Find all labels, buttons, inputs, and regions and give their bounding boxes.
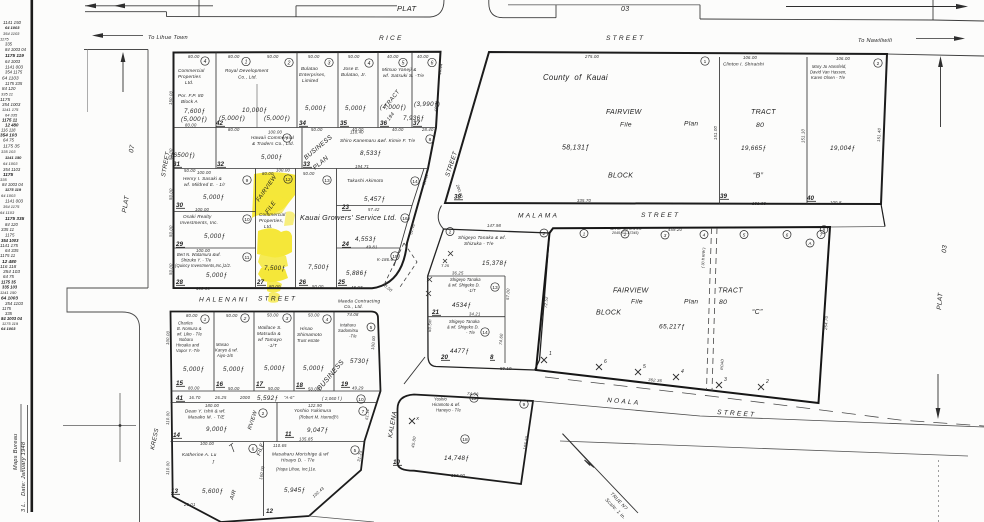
- svg-text:26.25: 26.25: [214, 395, 227, 400]
- svg-text:64 1003: 64 1003: [3, 161, 18, 166]
- svg-text:TRACT: TRACT: [718, 288, 743, 295]
- svg-text:19,004ƒ: 19,004ƒ: [830, 145, 855, 152]
- svg-text:5,000ƒ: 5,000ƒ: [203, 194, 224, 201]
- svg-text:40.00: 40.00: [387, 54, 399, 59]
- svg-text:64 1103: 64 1103: [0, 210, 15, 215]
- svg-text:Limited: Limited: [302, 78, 318, 83]
- svg-text:Co., Ltd.: Co., Ltd.: [238, 75, 257, 80]
- svg-text:60.5m: 60.5m: [427, 319, 432, 332]
- svg-text:wf. Satsuki S. -T/e: wf. Satsuki S. -T/e: [383, 73, 424, 78]
- svg-text:Co., Ltd.: Co., Ltd.: [344, 304, 363, 309]
- svg-text:354 1175: 354 1175: [3, 204, 20, 209]
- svg-text:80: 80: [719, 299, 727, 306]
- svg-text:Hiroaka and: Hiroaka and: [176, 343, 200, 348]
- svg-text:6: 6: [786, 233, 789, 239]
- svg-text:1175 11: 1175 11: [0, 253, 16, 258]
- svg-text:64 1003: 64 1003: [1, 193, 16, 198]
- svg-text:150.00: 150.00: [168, 90, 174, 105]
- svg-text:4: 4: [368, 61, 371, 67]
- svg-text:50.00: 50.00: [348, 54, 360, 59]
- svg-text:Ltd.: Ltd.: [264, 224, 272, 229]
- svg-text:wf. Liko - T/e: wf. Liko - T/e: [177, 332, 202, 337]
- svg-text:7,500ƒ: 7,500ƒ: [264, 265, 285, 272]
- svg-text:Shigeyo Tanaka: Shigeyo Tanaka: [450, 277, 481, 282]
- svg-text:Royal Development: Royal Development: [225, 68, 269, 73]
- svg-text:74.06: 74.06: [467, 391, 479, 397]
- svg-text:11: 11: [245, 255, 250, 261]
- svg-text:Kanyo & wf.: Kanyo & wf.: [215, 348, 238, 353]
- svg-text:6: 6: [431, 61, 434, 67]
- svg-text:100.00: 100.00: [196, 286, 210, 291]
- svg-text:STREET: STREET: [258, 296, 297, 303]
- svg-text:13: 13: [492, 285, 498, 291]
- svg-text:80: 80: [756, 122, 764, 129]
- svg-text:(5,000ƒ): (5,000ƒ): [219, 115, 245, 122]
- svg-text:5,000ƒ: 5,000ƒ: [303, 365, 324, 372]
- svg-text:Aiyo-1/6: Aiyo-1/6: [216, 353, 233, 358]
- svg-text:Dean Y. Ishii & wf.: Dean Y. Ishii & wf.: [185, 409, 226, 414]
- svg-text:5,457ƒ: 5,457ƒ: [364, 196, 385, 203]
- svg-text:-1/T: -1/T: [468, 288, 476, 293]
- svg-text:50.00: 50.00: [267, 54, 279, 59]
- svg-text:(Robert M. Harrod)½: (Robert M. Harrod)½: [299, 415, 339, 420]
- svg-text:1: 1: [245, 60, 248, 66]
- svg-text:40.00: 40.00: [417, 54, 429, 59]
- svg-text:Matsuda &: Matsuda &: [257, 331, 281, 336]
- svg-text:135.85: 135.85: [299, 437, 313, 442]
- svg-text:110.00: 110.00: [165, 461, 170, 475]
- svg-text:(Quincy Investments,Inc.)1/2.: (Quincy Investments,Inc.)1/2.: [175, 263, 231, 268]
- svg-text:Sadomitsu: Sadomitsu: [338, 328, 359, 333]
- svg-text:7,600ƒ: 7,600ƒ: [184, 108, 205, 115]
- svg-text:5,000ƒ: 5,000ƒ: [305, 105, 326, 112]
- svg-text:5,000ƒ: 5,000ƒ: [206, 272, 227, 279]
- svg-text:File: File: [631, 299, 643, 306]
- svg-text:Plan: Plan: [684, 121, 698, 128]
- svg-text:TRACT: TRACT: [751, 109, 776, 116]
- svg-text:Ltd.: Ltd.: [185, 80, 193, 85]
- svg-text:B. Nomura &: B. Nomura &: [177, 326, 202, 331]
- svg-text:50.00: 50.00: [308, 54, 320, 59]
- svg-text:64 1003: 64 1003: [1, 296, 18, 301]
- svg-text:BLOCK: BLOCK: [608, 173, 633, 180]
- svg-text:3: 3: [286, 316, 289, 322]
- svg-text:Shizuka - T/e: Shizuka - T/e: [464, 241, 494, 246]
- svg-text:28.40: 28.40: [421, 127, 434, 132]
- svg-text:100.00: 100.00: [195, 207, 209, 212]
- svg-text:151.10: 151.10: [801, 129, 806, 143]
- svg-text:1175 335: 1175 335: [5, 216, 25, 221]
- svg-text:5,592ƒ: 5,592ƒ: [257, 395, 278, 402]
- svg-text:64 1003: 64 1003: [5, 25, 20, 30]
- svg-text:FAIRVIEW: FAIRVIEW: [613, 288, 650, 295]
- svg-text:9,047ƒ: 9,047ƒ: [307, 427, 328, 434]
- svg-text:1175 119: 1175 119: [5, 187, 22, 192]
- svg-text:Mary Jo Hassfeld,: Mary Jo Hassfeld,: [812, 64, 846, 69]
- svg-text:Por. F.P. 80: Por. F.P. 80: [178, 93, 204, 98]
- svg-text:Bulatao: Bulatao: [301, 66, 318, 71]
- svg-text:61.11: 61.11: [364, 409, 370, 421]
- svg-text:7: 7: [286, 136, 289, 142]
- svg-text:354 1103: 354 1103: [3, 31, 20, 36]
- svg-text:K-186.6: K-186.6: [377, 257, 394, 262]
- svg-text:1: 1: [204, 317, 207, 323]
- svg-text:49.81: 49.81: [366, 245, 377, 250]
- svg-text:147.98: 147.98: [487, 223, 501, 228]
- svg-text:100.00: 100.00: [197, 170, 211, 175]
- svg-text:& wf. Shigeko D.: & wf. Shigeko D.: [447, 325, 479, 330]
- svg-text:50.00: 50.00: [168, 188, 173, 200]
- svg-text:13: 13: [324, 178, 330, 184]
- svg-text:Masako M. - T/E: Masako M. - T/E: [188, 415, 225, 420]
- svg-text:“A-6”: “A-6”: [284, 395, 295, 400]
- svg-text:( 2,060 f ): ( 2,060 f ): [322, 396, 343, 401]
- svg-text:459.20: 459.20: [668, 227, 682, 232]
- svg-text:5,000ƒ: 5,000ƒ: [223, 366, 244, 373]
- svg-text:Hiramoto & wf.: Hiramoto & wf.: [432, 402, 460, 407]
- svg-text:118.40: 118.40: [350, 130, 364, 135]
- svg-text:59.10: 59.10: [500, 366, 512, 371]
- svg-text:MALAMA: MALAMA: [518, 213, 559, 220]
- svg-text:18: 18: [462, 437, 468, 443]
- svg-text:57.42: 57.42: [368, 207, 380, 212]
- svg-text:80.00: 80.00: [188, 54, 200, 59]
- svg-text:HALENANI: HALENANI: [199, 297, 250, 304]
- svg-text:2: 2: [262, 411, 265, 417]
- svg-text:9,000ƒ: 9,000ƒ: [206, 426, 227, 433]
- svg-text:2: 2: [542, 231, 546, 237]
- svg-text:Bert N. Watamura &wf.: Bert N. Watamura &wf.: [177, 252, 221, 257]
- svg-text:3: 3: [328, 61, 331, 67]
- svg-text:1: 1: [549, 351, 552, 357]
- svg-text:Yoshio Yukimura: Yoshio Yukimura: [294, 408, 331, 413]
- svg-text:5,600ƒ: 5,600ƒ: [202, 488, 223, 495]
- svg-text:12: 12: [471, 396, 477, 402]
- svg-text:Hisayo D. - T/e: Hisayo D. - T/e: [281, 458, 315, 463]
- svg-text:4,553ƒ: 4,553ƒ: [355, 236, 376, 243]
- svg-text:(5,000ƒ): (5,000ƒ): [264, 115, 290, 122]
- svg-text:Shiro Kanemaru &wf. Kimie F.: Shiro Kanemaru &wf. Kimie F. T/e: [340, 138, 415, 143]
- svg-text:50.00: 50.00: [312, 284, 324, 289]
- svg-text:Jose E.: Jose E.: [342, 66, 360, 71]
- svg-text:64 1003: 64 1003: [5, 59, 21, 64]
- svg-text:50.00: 50.00: [311, 127, 323, 132]
- svg-text:40.00: 40.00: [392, 127, 404, 132]
- svg-text:5,000ƒ: 5,000ƒ: [264, 365, 285, 372]
- svg-text:STREET: STREET: [606, 35, 645, 42]
- svg-text:5: 5: [370, 325, 373, 331]
- svg-text:STREET: STREET: [641, 212, 680, 219]
- svg-text:5: 5: [402, 61, 405, 67]
- svg-text:Yoshio: Yoshio: [434, 397, 448, 402]
- svg-text:100.00: 100.00: [165, 330, 171, 345]
- svg-text:Maps Bureau: Maps Bureau: [13, 433, 19, 470]
- svg-text:03: 03: [621, 6, 629, 13]
- svg-text:151.00: 151.00: [713, 126, 718, 140]
- svg-text:2000: 2000: [239, 395, 251, 400]
- svg-text:ƒ: ƒ: [212, 459, 215, 464]
- svg-text:Shigeyo Tanaka & wf.: Shigeyo Tanaka & wf.: [458, 235, 506, 240]
- svg-text:106.00: 106.00: [743, 55, 757, 60]
- svg-text:64 1003: 64 1003: [1, 326, 16, 331]
- svg-text:07: 07: [128, 144, 136, 153]
- svg-text:4534ƒ: 4534ƒ: [452, 302, 471, 309]
- svg-text:10: 10: [244, 217, 250, 223]
- svg-text:14: 14: [412, 179, 418, 185]
- svg-text:Wallace S.: Wallace S.: [258, 325, 282, 330]
- svg-text:74.60: 74.60: [498, 333, 504, 345]
- svg-text:50.00: 50.00: [268, 386, 280, 391]
- svg-text:50.00: 50.00: [228, 386, 240, 391]
- svg-text:Hisao: Hisao: [300, 326, 313, 331]
- svg-text:Karen Olsen - T/e: Karen Olsen - T/e: [811, 75, 846, 80]
- svg-text:5,000ƒ: 5,000ƒ: [345, 105, 366, 112]
- svg-text:Masaharu Morishige & wf: Masaharu Morishige & wf: [272, 452, 329, 457]
- svg-text:Trust estate: Trust estate: [297, 338, 320, 343]
- svg-text:80.00: 80.00: [185, 123, 197, 128]
- svg-text:Kauai Growers’ Service Ltd.: Kauai Growers’ Service Ltd.: [300, 213, 397, 222]
- svg-text:ROAD: ROAD: [720, 359, 725, 370]
- svg-text:335 103: 335 103: [2, 284, 18, 289]
- svg-text:FAIRVIEW: FAIRVIEW: [606, 109, 643, 116]
- svg-text:34.21: 34.21: [469, 312, 480, 317]
- svg-text:2: 2: [449, 230, 452, 236]
- svg-text:50.00: 50.00: [267, 313, 279, 318]
- svg-text:BLOCK: BLOCK: [596, 310, 621, 317]
- svg-text:84 1003 04: 84 1003 04: [5, 47, 27, 52]
- svg-text:100.00: 100.00: [276, 168, 290, 173]
- svg-text:49.29: 49.29: [352, 386, 364, 391]
- svg-text:4: 4: [703, 233, 706, 239]
- svg-text:335.70: 335.70: [577, 198, 591, 203]
- svg-text:6: 6: [604, 359, 607, 365]
- svg-text:5,945ƒ: 5,945ƒ: [284, 487, 305, 494]
- svg-text:2: 2: [765, 379, 769, 385]
- svg-text:1141 150: 1141 150: [0, 290, 17, 295]
- svg-text:2: 2: [877, 61, 880, 67]
- svg-text:64 75: 64 75: [3, 138, 15, 143]
- svg-text:Charles: Charles: [178, 321, 193, 326]
- svg-text:(6500ƒ): (6500ƒ): [171, 152, 195, 159]
- svg-text:Mitsuo Yaneji &: Mitsuo Yaneji &: [382, 67, 417, 72]
- svg-text:To Lihue Town: To Lihue Town: [148, 35, 188, 41]
- svg-text:65,217ƒ: 65,217ƒ: [659, 324, 685, 331]
- svg-text:8: 8: [429, 137, 432, 143]
- svg-text:50.00: 50.00: [168, 263, 173, 275]
- svg-text:4: 4: [326, 317, 329, 323]
- svg-text:9: 9: [246, 178, 249, 184]
- svg-text:4: 4: [681, 369, 684, 375]
- svg-text:12: 12: [266, 508, 273, 515]
- svg-text:Properties,: Properties,: [259, 218, 283, 223]
- svg-text:-T/e: -T/e: [349, 334, 357, 339]
- svg-text:74.08: 74.08: [347, 312, 359, 317]
- svg-text:Masao: Masao: [216, 342, 229, 347]
- svg-text:- T/e: - T/e: [466, 330, 476, 335]
- svg-text:Enterprises,: Enterprises,: [299, 72, 326, 77]
- svg-text:48.07: 48.07: [351, 285, 363, 290]
- svg-text:Henry I. Sasaki &: Henry I. Sasaki &: [183, 176, 222, 181]
- svg-text:Properties: Properties: [178, 74, 201, 79]
- svg-text:6: 6: [252, 447, 255, 453]
- svg-text:County of Kauai: County of Kauai: [543, 73, 608, 82]
- svg-text:64 1103: 64 1103: [2, 76, 19, 81]
- svg-text:335 11: 335 11: [1, 227, 15, 232]
- svg-text:5,000ƒ: 5,000ƒ: [261, 154, 282, 161]
- svg-text:15,378ƒ: 15,378ƒ: [482, 260, 507, 267]
- svg-text:David Van Hassen,: David Van Hassen,: [810, 70, 847, 75]
- svg-text:& wf. Shigeko D.: & wf. Shigeko D.: [448, 283, 480, 288]
- svg-text:File: File: [620, 122, 632, 129]
- svg-text:110.00: 110.00: [165, 411, 170, 425]
- svg-text:50.00: 50.00: [168, 225, 173, 237]
- svg-text:25.01: 25.01: [183, 502, 195, 507]
- svg-text:2: 2: [287, 61, 291, 67]
- svg-text:58,131ƒ: 58,131ƒ: [562, 145, 589, 152]
- svg-text:Clinton I. Shiraishi: Clinton I. Shiraishi: [723, 62, 765, 67]
- svg-text:5: 5: [643, 364, 646, 370]
- svg-text:157.00: 157.00: [451, 473, 465, 478]
- svg-text:(4,000ƒ): (4,000ƒ): [380, 104, 406, 111]
- svg-text:80.00: 80.00: [269, 284, 281, 289]
- svg-text:1175 35: 1175 35: [3, 144, 20, 149]
- svg-text:16: 16: [402, 216, 408, 222]
- svg-text:4: 4: [204, 59, 207, 65]
- svg-text:80.00: 80.00: [228, 54, 240, 59]
- svg-text:3 L. Date: January 1948: 3 L. Date: January 1948: [21, 441, 27, 512]
- svg-text:1: 1: [704, 59, 707, 65]
- svg-text:101.00: 101.00: [752, 201, 766, 206]
- svg-text:Investments, Inc.: Investments, Inc.: [180, 220, 218, 225]
- svg-text:03: 03: [941, 245, 949, 254]
- svg-text:“B”: “B”: [753, 173, 764, 180]
- svg-text:Plan: Plan: [684, 299, 698, 306]
- svg-text:5,000ƒ: 5,000ƒ: [204, 233, 225, 240]
- svg-text:4477ƒ: 4477ƒ: [450, 348, 469, 355]
- svg-text:151.40: 151.40: [876, 127, 882, 142]
- svg-text:PLAT: PLAT: [397, 4, 418, 13]
- svg-text:5,886ƒ: 5,886ƒ: [346, 270, 367, 277]
- svg-text:10: 10: [358, 397, 364, 403]
- svg-text:3: 3: [724, 377, 727, 383]
- svg-text:Commercial: Commercial: [178, 68, 205, 73]
- svg-text:Commercial: Commercial: [259, 212, 286, 217]
- svg-text:14,748ƒ: 14,748ƒ: [444, 455, 469, 462]
- svg-text:5: 5: [354, 448, 357, 454]
- svg-text:9: 9: [523, 402, 526, 408]
- svg-text:180.00: 180.00: [205, 403, 219, 408]
- svg-text:(Hapa Lihue, Inc.)1e.: (Hapa Lihue, Inc.)1e.: [276, 467, 316, 472]
- svg-text:T 25: T 25: [441, 263, 450, 268]
- svg-text:RICE: RICE: [379, 35, 404, 42]
- svg-text:80.00: 80.00: [188, 386, 200, 391]
- svg-text:Katherine A. Lu: Katherine A. Lu: [182, 452, 217, 457]
- svg-text:354 1175: 354 1175: [5, 70, 23, 75]
- svg-text:50.00: 50.00: [184, 168, 196, 173]
- svg-text:7,500ƒ: 7,500ƒ: [308, 264, 329, 271]
- svg-text:Intaharu: Intaharu: [340, 323, 356, 328]
- svg-text:14: 14: [482, 330, 488, 336]
- svg-text:Haneyo - T/e: Haneyo - T/e: [436, 408, 461, 413]
- svg-text:335 103: 335 103: [1, 149, 16, 154]
- svg-text:100.00: 100.00: [268, 130, 282, 135]
- svg-text:7: 7: [820, 233, 823, 239]
- svg-text:wf. Mildred E. - 1/r: wf. Mildred E. - 1/r: [184, 182, 226, 187]
- svg-text:2045 (07-17345): 2045 (07-17345): [611, 231, 639, 235]
- svg-text:1175 119: 1175 119: [5, 53, 24, 58]
- svg-text:5,000ƒ: 5,000ƒ: [183, 366, 204, 373]
- svg-text:5: 5: [743, 233, 746, 239]
- svg-text:80.00: 80.00: [228, 127, 240, 132]
- svg-text:80.00: 80.00: [186, 313, 198, 318]
- svg-text:19,665ƒ: 19,665ƒ: [741, 145, 766, 152]
- svg-text:36.25: 36.25: [452, 271, 464, 276]
- svg-text:2: 2: [243, 316, 247, 322]
- svg-text:50.00: 50.00: [226, 313, 238, 318]
- svg-text:5730ƒ: 5730ƒ: [350, 358, 369, 365]
- svg-text:106.00: 106.00: [836, 56, 850, 61]
- svg-text:80.00: 80.00: [262, 171, 274, 176]
- svg-text:A: A: [807, 241, 811, 247]
- svg-text:8,533ƒ: 8,533ƒ: [360, 150, 381, 157]
- svg-text:1141 150: 1141 150: [5, 155, 22, 160]
- svg-text:16.70: 16.70: [189, 395, 201, 400]
- svg-text:Shigeyo Tanaka: Shigeyo Tanaka: [449, 319, 480, 324]
- svg-text:Osaki Realty: Osaki Realty: [183, 214, 212, 219]
- svg-text:Shimamoto: Shimamoto: [297, 332, 322, 337]
- svg-text:335 11: 335 11: [1, 91, 13, 96]
- svg-text:Takashi Akimoto: Takashi Akimoto: [347, 178, 384, 183]
- svg-text:To Nawiliwili: To Nawiliwili: [858, 38, 893, 44]
- svg-text:12: 12: [285, 177, 291, 183]
- svg-text:275.00: 275.00: [584, 54, 599, 59]
- svg-text:100.00: 100.00: [200, 441, 214, 446]
- svg-text:10,000ƒ: 10,000ƒ: [242, 107, 267, 114]
- svg-text:3: 3: [664, 233, 667, 239]
- svg-text:wf Tamayo: wf Tamayo: [258, 337, 282, 342]
- svg-text:194.71: 194.71: [355, 164, 369, 169]
- svg-text:Maeda Contracting: Maeda Contracting: [338, 299, 380, 304]
- svg-text:110.65: 110.65: [273, 443, 287, 448]
- svg-text:Nobaru: Nobaru: [179, 337, 194, 342]
- svg-text:50.00: 50.00: [303, 171, 315, 176]
- svg-text:1175: 1175: [5, 233, 15, 238]
- svg-text:1: 1: [583, 232, 586, 238]
- svg-text:57.00: 57.00: [505, 288, 511, 300]
- svg-text:100.8: 100.8: [830, 200, 842, 205]
- svg-text:Block A: Block A: [181, 99, 198, 104]
- svg-text:-1/T: -1/T: [268, 343, 278, 348]
- svg-text:50.00: 50.00: [308, 313, 320, 318]
- svg-text:Bulatao, Jr.: Bulatao, Jr.: [341, 72, 366, 77]
- svg-text:Vapor Y.-T/e: Vapor Y.-T/e: [176, 348, 200, 353]
- svg-text:Shizuko Y. - T/e: Shizuko Y. - T/e: [181, 258, 212, 263]
- svg-text:“C”: “C”: [752, 309, 763, 316]
